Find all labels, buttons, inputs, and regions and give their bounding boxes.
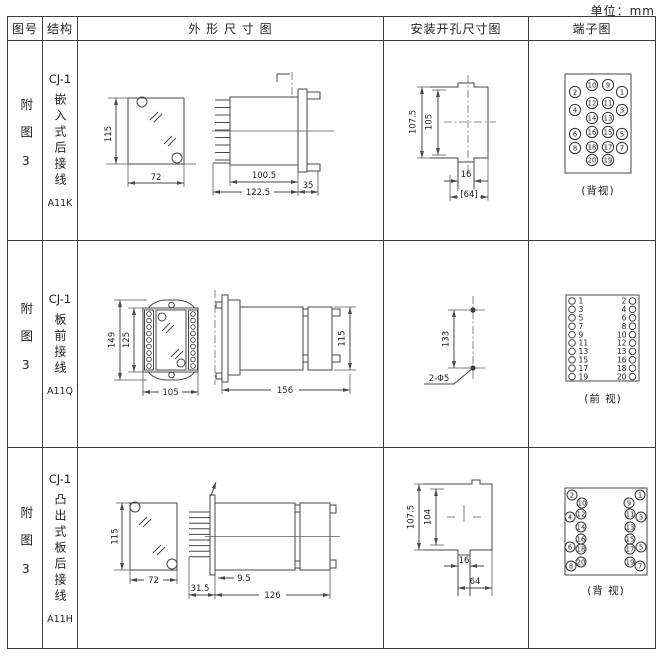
structure-cell-row1: CJ-1 嵌入式后接线 A11K <box>43 41 78 241</box>
header-terminal: 端子图 <box>529 17 655 41</box>
front-view: 149 125 105 <box>108 300 199 398</box>
cutout-outline <box>423 480 492 596</box>
svg-text:16: 16 <box>588 128 597 136</box>
fig-no-cell-row2: 附图3 <box>8 241 43 448</box>
dim-front-width: 105 <box>162 388 178 398</box>
header-structure: 结构 <box>43 17 78 41</box>
svg-text:8: 8 <box>569 562 573 570</box>
fig-no-row3: 附图3 <box>19 506 32 591</box>
dim-pin-depth: 31.5 <box>191 584 210 594</box>
svg-text:2: 2 <box>573 88 577 96</box>
structure-cell-row3: CJ-1 凸出式板后接线 A11H <box>43 448 78 648</box>
mount-type-label: 凸出式板后接线 <box>54 493 66 605</box>
install-cell-row3: 107.5 104 16 64 <box>384 448 529 648</box>
side-view: 9.5 31.5 126 <box>189 482 340 601</box>
terminal-diagram-a11q: 12 34 56 78 910 1112 1313 1516 1718 1920… <box>529 241 653 447</box>
fig-no-row2: 附图3 <box>19 302 32 387</box>
terminal-cell-row3: 2 10 12 4 14 16 6 18 20 8 1 9 11 3 13 15 <box>529 448 655 648</box>
code-label: A11Q <box>47 386 73 397</box>
dim-gap: 9.5 <box>237 574 251 584</box>
svg-text:3: 3 <box>620 106 624 114</box>
outline-drawing-a11q: 149 125 105 <box>78 241 384 447</box>
svg-text:15: 15 <box>626 535 635 543</box>
svg-text:17: 17 <box>626 545 635 553</box>
svg-text:2: 2 <box>570 491 574 499</box>
terminal-cell-row1: 10 12 14 16 18 20 9 11 13 15 17 19 2 4 6… <box>529 41 655 241</box>
glass-hatch <box>139 517 165 555</box>
svg-text:7: 7 <box>620 144 624 152</box>
terminal-caption: (背 视) <box>587 584 625 597</box>
terminal-caption: (背视) <box>581 184 614 197</box>
terminal-caption: (前 视) <box>584 392 622 405</box>
svg-text:10: 10 <box>588 81 597 89</box>
terminal-pins <box>215 100 230 160</box>
svg-text:11: 11 <box>604 99 613 107</box>
terminal-rows: 12 34 56 78 910 1112 1313 1516 1718 1920 <box>569 297 636 382</box>
svg-text:20: 20 <box>588 156 597 164</box>
outline-cell-row2: 149 125 105 <box>78 241 384 448</box>
dim-front-height-inner: 125 <box>122 332 132 348</box>
dim-front-width: 72 <box>151 173 162 183</box>
svg-text:7: 7 <box>638 562 642 570</box>
dim-height-inner: 104 <box>424 509 434 525</box>
svg-text:3: 3 <box>639 513 643 521</box>
dim-front-height: 115 <box>104 126 114 142</box>
svg-text:12: 12 <box>577 510 586 518</box>
dim-front-width: 72 <box>148 576 159 586</box>
dim-front-height-outer: 149 <box>108 332 118 348</box>
mount-type-label: 板前接线 <box>54 313 66 377</box>
terminal-cell-row2: 12 34 56 78 910 1112 1313 1516 1718 1920… <box>529 241 655 448</box>
dim-body-height: 115 <box>338 330 348 346</box>
svg-text:16: 16 <box>577 535 586 543</box>
model-label: CJ-1 <box>49 292 71 306</box>
svg-text:14: 14 <box>588 114 597 122</box>
svg-text:19: 19 <box>626 558 635 566</box>
terminal-circles: 10 12 14 16 18 20 9 11 13 15 17 19 2 4 6… <box>569 79 627 165</box>
dim-hole-spacing: 133 <box>442 331 452 347</box>
dim-body-depth: 126 <box>264 591 280 601</box>
model-label: CJ-1 <box>49 472 71 486</box>
svg-text:5: 5 <box>639 543 643 551</box>
svg-text:9: 9 <box>627 499 631 507</box>
dim-cutout-width: 64 <box>470 577 481 587</box>
install-cell-row1: 107.5 105 16 [64] <box>384 41 529 241</box>
dim-height-outer: 107.5 <box>407 505 417 529</box>
svg-text:9: 9 <box>606 81 610 89</box>
fig-no-row1: 附图3 <box>19 98 32 183</box>
fig-no-cell-row3: 附图3 <box>8 448 43 648</box>
mounting-plate-side <box>222 295 228 382</box>
outline-drawing-a11k: 115 72 <box>78 41 384 240</box>
outline-cell-row1: 115 72 <box>78 41 384 241</box>
svg-text:14: 14 <box>577 523 586 531</box>
dim-front-height: 115 <box>111 528 121 544</box>
hole-note: 2-Φ5 <box>429 374 450 384</box>
dim-cutout-width: [64] <box>460 190 477 200</box>
model-label: CJ-1 <box>49 72 71 86</box>
datasheet-page: 单位：mm 图号 结构 外 形 尺 寸 图 安装开孔尺寸图 端子图 附图3 CJ… <box>0 0 664 658</box>
svg-text:8: 8 <box>573 144 577 152</box>
header-install: 安装开孔尺寸图 <box>384 17 529 41</box>
side-view: 115 156 <box>215 290 356 396</box>
center-marks <box>447 505 481 522</box>
svg-text:18: 18 <box>588 143 597 151</box>
dim-body-depth: 100.5 <box>252 171 276 181</box>
header-outline: 外 形 尺 寸 图 <box>78 17 384 41</box>
code-label: A11K <box>48 198 73 209</box>
svg-text:20: 20 <box>617 372 627 381</box>
svg-text:5: 5 <box>620 130 624 138</box>
svg-text:19: 19 <box>579 372 589 381</box>
rear-block <box>308 307 332 370</box>
svg-text:1: 1 <box>620 88 624 96</box>
svg-text:13: 13 <box>604 114 613 122</box>
dim-flange-depth: 35 <box>303 181 314 191</box>
code-label: A11H <box>47 614 73 625</box>
terminal-diagram-a11h: 2 10 12 4 14 16 6 18 20 8 1 9 11 3 13 15 <box>529 448 653 647</box>
terminal-diagram-a11k: 10 12 14 16 18 20 9 11 13 15 17 19 2 4 6… <box>529 41 653 240</box>
svg-text:6: 6 <box>573 130 577 138</box>
front-view: 115 72 <box>111 502 178 586</box>
relay-body <box>240 307 303 370</box>
svg-text:10: 10 <box>578 499 587 507</box>
mount-type-label: 嵌入式后接线 <box>54 93 66 189</box>
svg-text:18: 18 <box>577 545 586 553</box>
svg-text:17: 17 <box>604 143 613 151</box>
install-drawing-a11q: 133 2-Φ5 <box>384 241 529 447</box>
terminal-pins <box>189 512 210 557</box>
svg-text:12: 12 <box>588 99 597 107</box>
side-view: 100.5 122.5 35 <box>212 72 334 198</box>
front-view: 115 72 <box>104 97 196 187</box>
dimension-table: 图号 结构 外 形 尺 寸 图 安装开孔尺寸图 端子图 附图3 CJ-1 嵌入式… <box>7 16 656 649</box>
glass-hatch <box>150 112 176 146</box>
panel-edge <box>277 74 290 82</box>
mounting-plate-side <box>210 495 215 575</box>
install-drawing-a11k: 107.5 105 16 [64] <box>384 41 529 240</box>
terminal-circles: 2 10 12 4 14 16 6 18 20 8 1 9 11 3 13 15 <box>565 490 646 571</box>
cutout-outline <box>430 83 488 191</box>
svg-text:4: 4 <box>568 513 572 521</box>
structure-cell-row2: CJ-1 板前接线 A11Q <box>43 241 78 448</box>
outline-cell-row3: 115 72 <box>78 448 384 648</box>
svg-text:4: 4 <box>573 106 577 114</box>
header-fig-no: 图号 <box>8 17 43 41</box>
svg-text:20: 20 <box>577 558 586 566</box>
install-cell-row2: 133 2-Φ5 <box>384 241 529 448</box>
flange <box>298 89 307 172</box>
svg-text:1: 1 <box>638 491 642 499</box>
fig-no-cell-row1: 附图3 <box>8 41 43 241</box>
dim-notch-width: 16 <box>459 556 470 566</box>
dim-total-depth: 156 <box>277 386 293 396</box>
install-drawing-a11h: 107.5 104 16 64 <box>384 448 529 647</box>
svg-text:13: 13 <box>626 523 635 531</box>
svg-text:11: 11 <box>626 510 635 518</box>
dim-notch-width: 16 <box>461 170 472 180</box>
svg-text:15: 15 <box>604 128 613 136</box>
dim-height-inner: 105 <box>425 114 435 130</box>
svg-text:6: 6 <box>568 543 572 551</box>
dim-height-outer: 107.5 <box>409 110 419 134</box>
outline-drawing-a11h: 115 72 <box>78 448 384 647</box>
svg-text:19: 19 <box>604 156 613 164</box>
dim-total-depth: 122.5 <box>246 188 270 198</box>
